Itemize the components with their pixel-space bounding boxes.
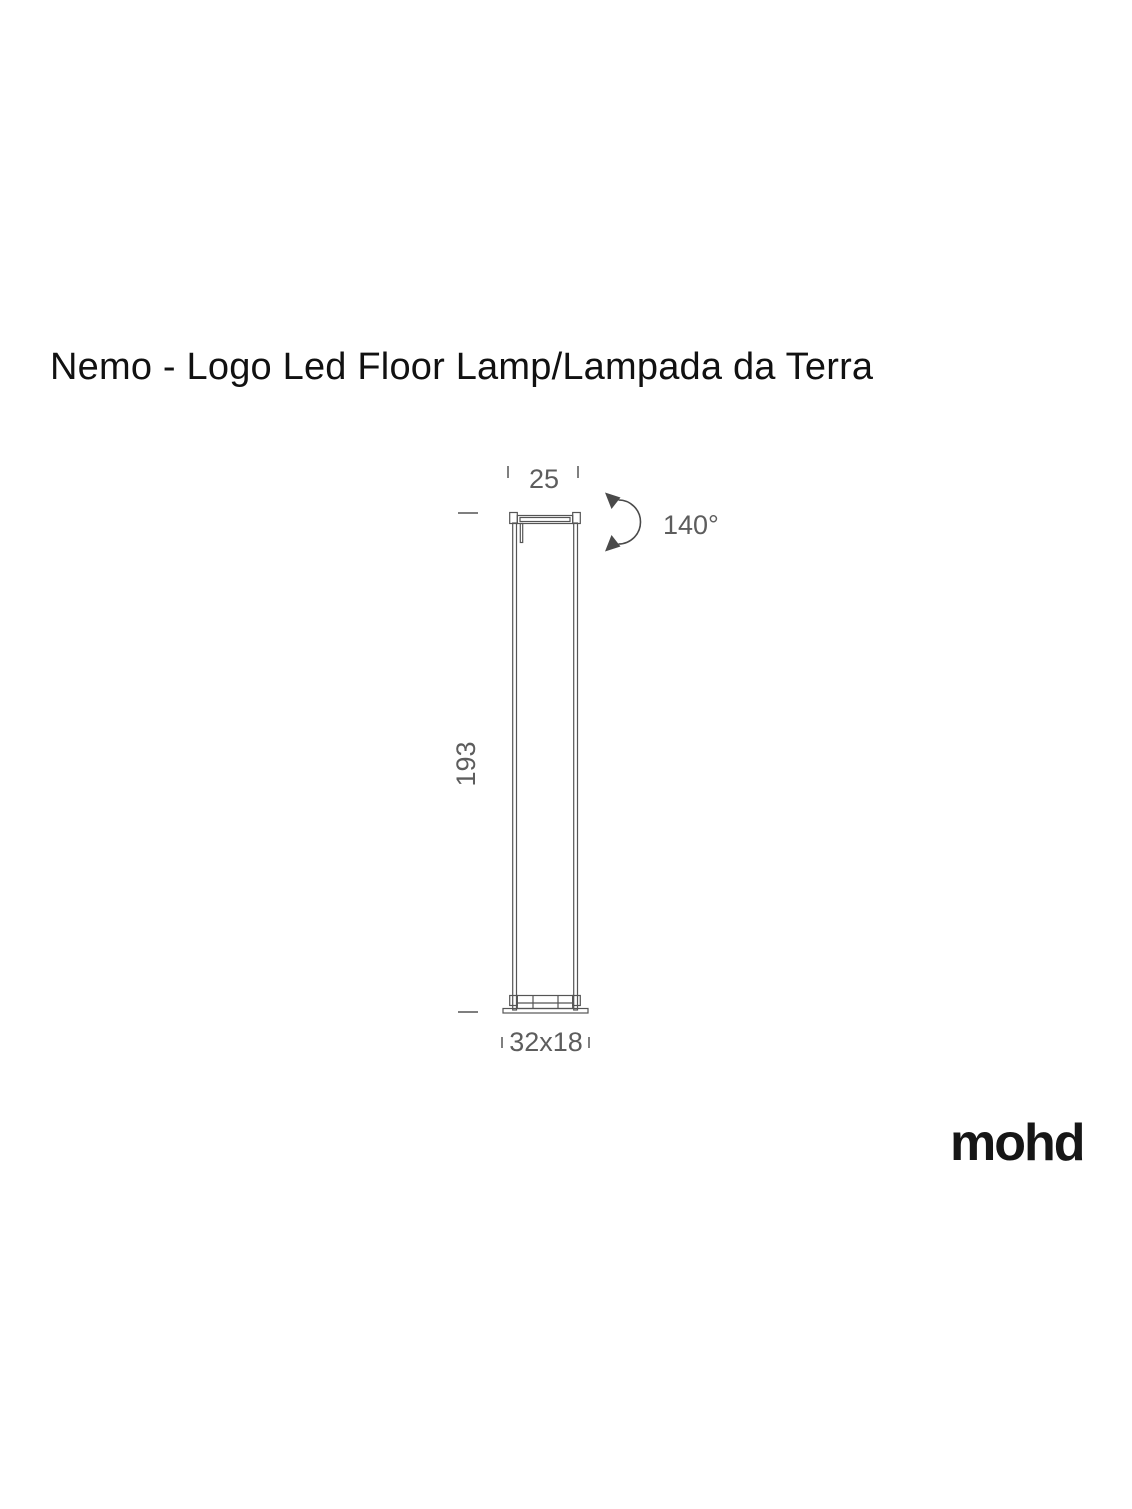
base-label: 32x18 [509, 1027, 583, 1057]
height-label: 193 [451, 741, 481, 786]
rotation-arc [619, 500, 641, 544]
page-title: Nemo - Logo Led Floor Lamp/Lampada da Te… [50, 346, 873, 389]
rotation-arrow-icon [605, 493, 641, 552]
arrowhead-bottom-icon [605, 535, 621, 552]
lamp-outline [503, 513, 588, 1014]
lamp-technical-drawing: 25 140° 193 [440, 450, 740, 1065]
lamp-top-tube-inner [520, 518, 570, 522]
height-dimension: 193 [451, 513, 481, 1012]
product-sheet: Nemo - Logo Led Floor Lamp/Lampada da Te… [0, 0, 1132, 1509]
lamp-top-tube [517, 516, 572, 524]
brand-logo: mohd [950, 1117, 1084, 1169]
lamp-bottom-tube [517, 996, 572, 1009]
head-width-label: 25 [529, 464, 559, 494]
head-width-dimension: 25 [508, 464, 578, 494]
lamp-base-plate [503, 1009, 588, 1014]
rotation-label: 140° [663, 510, 719, 540]
lamp-top-left-cap [510, 513, 518, 524]
lamp-top-right-cap [573, 513, 581, 524]
base-dimension: 32x18 [502, 1027, 589, 1057]
lamp-pull-cord [520, 524, 522, 543]
lamp-left-post [513, 523, 517, 1010]
arrowhead-top-icon [605, 493, 621, 510]
rotation-annotation: 140° [605, 493, 719, 552]
lamp-right-post [574, 523, 578, 1010]
dimension-diagram: 25 140° 193 [440, 450, 740, 1065]
